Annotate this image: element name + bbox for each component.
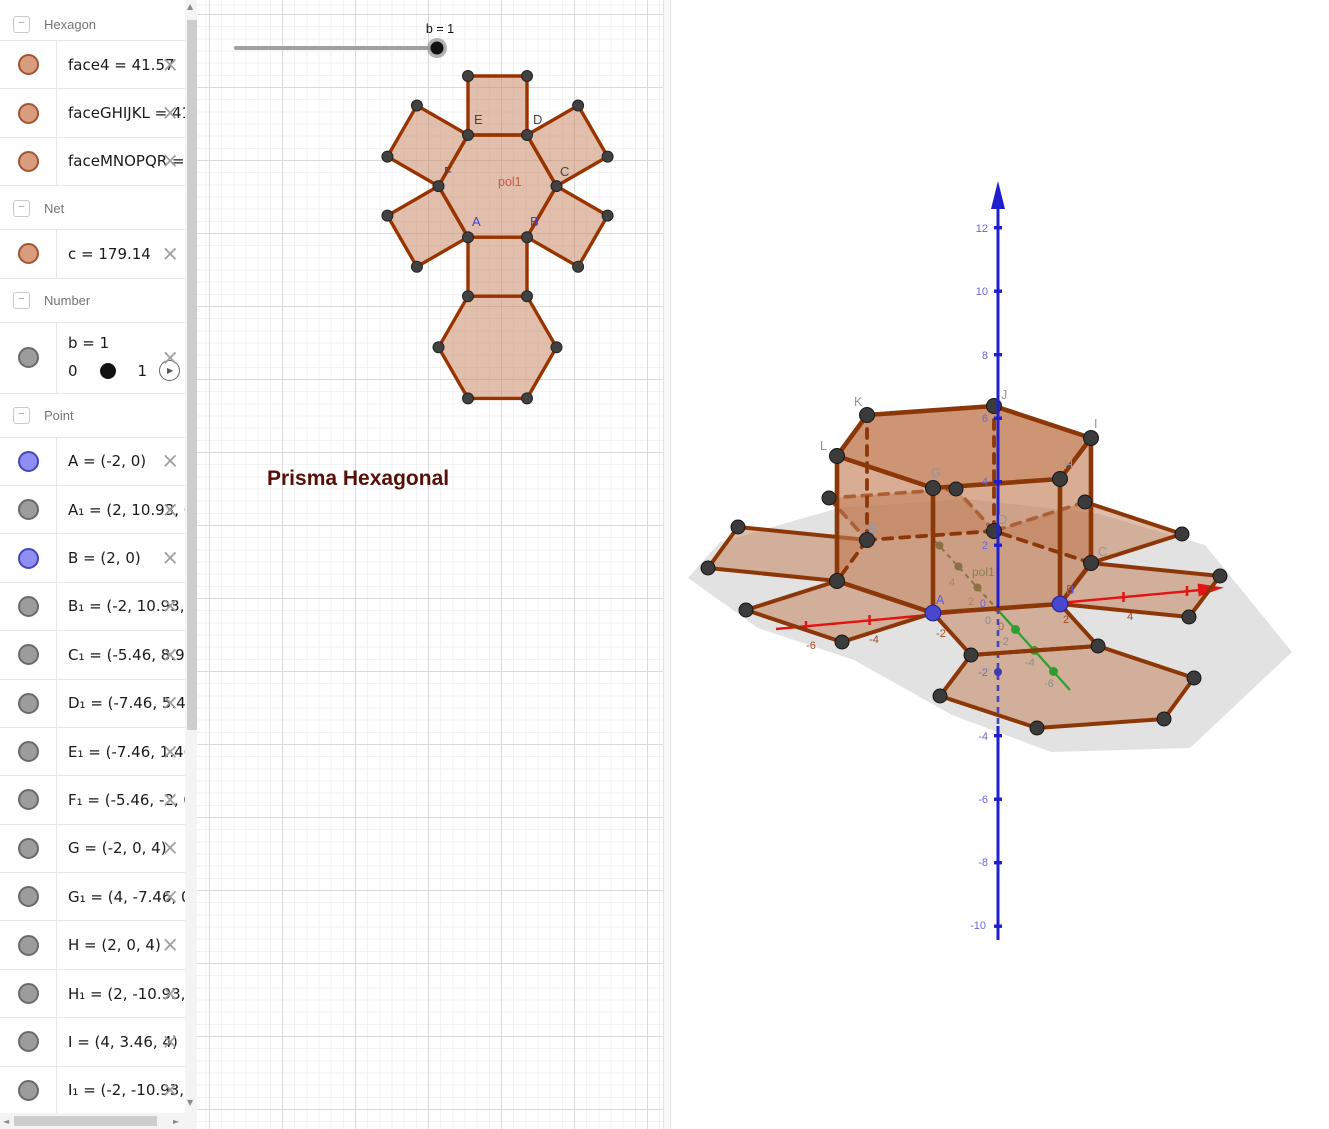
vertex-label-K-3d: K (854, 395, 863, 409)
svg-text:-4: -4 (869, 634, 879, 646)
vertex-label-B: B (530, 214, 539, 229)
vertex-label-B-3d: B (1066, 583, 1074, 597)
slider-b[interactable]: b = 1 (236, 22, 454, 58)
geogebra-app: − Hexagon face4 = 41.57 × faceGHIJKL = 4… (0, 0, 1329, 1129)
svg-text:-6: -6 (806, 640, 816, 652)
vertex-label-L-3d: L (820, 439, 827, 453)
page-title: Prisma Hexagonal (267, 467, 449, 490)
vertex-label-I-3d: I (1094, 417, 1097, 431)
svg-text:2: 2 (982, 540, 988, 552)
polygon-label-pol1: pol1 (498, 175, 522, 189)
z-axis-origin-label: 0 (980, 598, 986, 610)
point-B-3d[interactable] (1052, 596, 1068, 612)
vertex-label-G-3d: G (931, 466, 941, 480)
svg-text:10: 10 (976, 286, 988, 298)
vertex-label-F: F (444, 164, 452, 179)
vertex-label-A-3d: A (936, 593, 945, 607)
svg-text:-8: -8 (978, 857, 988, 869)
net-polygons[interactable] (387, 76, 607, 398)
vertex-label-H-3d: H (1064, 458, 1073, 472)
svg-text:-6: -6 (978, 794, 988, 806)
vertex-label-D-3d: D (998, 513, 1007, 527)
svg-text:-2: -2 (978, 667, 988, 679)
svg-text:-2: -2 (999, 636, 1009, 648)
scene-3d: -6 -4 -2 2 4 0 4 2 0 -2 (688, 181, 1292, 940)
prism-faces[interactable] (837, 406, 1091, 613)
net-square-bottom[interactable] (468, 237, 527, 296)
vertex-label-E: E (474, 112, 483, 127)
vertex-label-C-3d: C (1098, 545, 1107, 559)
net-hexagon-base2[interactable] (439, 296, 557, 398)
svg-text:6: 6 (982, 413, 988, 425)
svg-text:-4: -4 (1025, 657, 1035, 669)
point-A-3d[interactable] (925, 605, 941, 621)
slider-handle[interactable] (431, 42, 444, 55)
svg-text:0: 0 (985, 615, 991, 627)
vertex-label-A: A (472, 214, 481, 229)
svg-text:-2: -2 (936, 628, 946, 640)
svg-text:-4: -4 (978, 731, 988, 743)
z-axis-arrow (991, 181, 1005, 209)
vertex-label-D: D (533, 112, 542, 127)
vertex-label-J-3d: J (1001, 388, 1007, 402)
svg-text:4: 4 (982, 476, 988, 488)
svg-text:12: 12 (976, 223, 988, 235)
vertex-label-C: C (560, 164, 569, 179)
vertex-label-E-3d: E (869, 522, 877, 536)
svg-text:-6: -6 (1044, 678, 1054, 690)
svg-text:8: 8 (982, 350, 988, 362)
scene-canvas: b = 1 E D F (0, 0, 1329, 1129)
svg-text:-10: -10 (970, 920, 986, 932)
slider-label: b = 1 (426, 22, 454, 36)
